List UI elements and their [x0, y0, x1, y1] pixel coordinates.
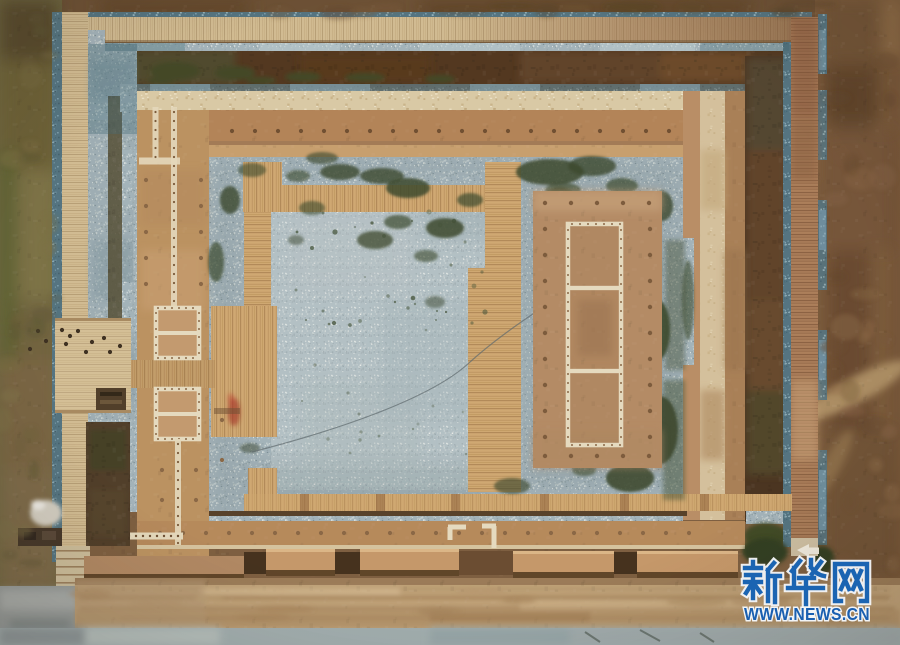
svg-text:WWW.NEWS.CN: WWW.NEWS.CN [744, 604, 870, 624]
